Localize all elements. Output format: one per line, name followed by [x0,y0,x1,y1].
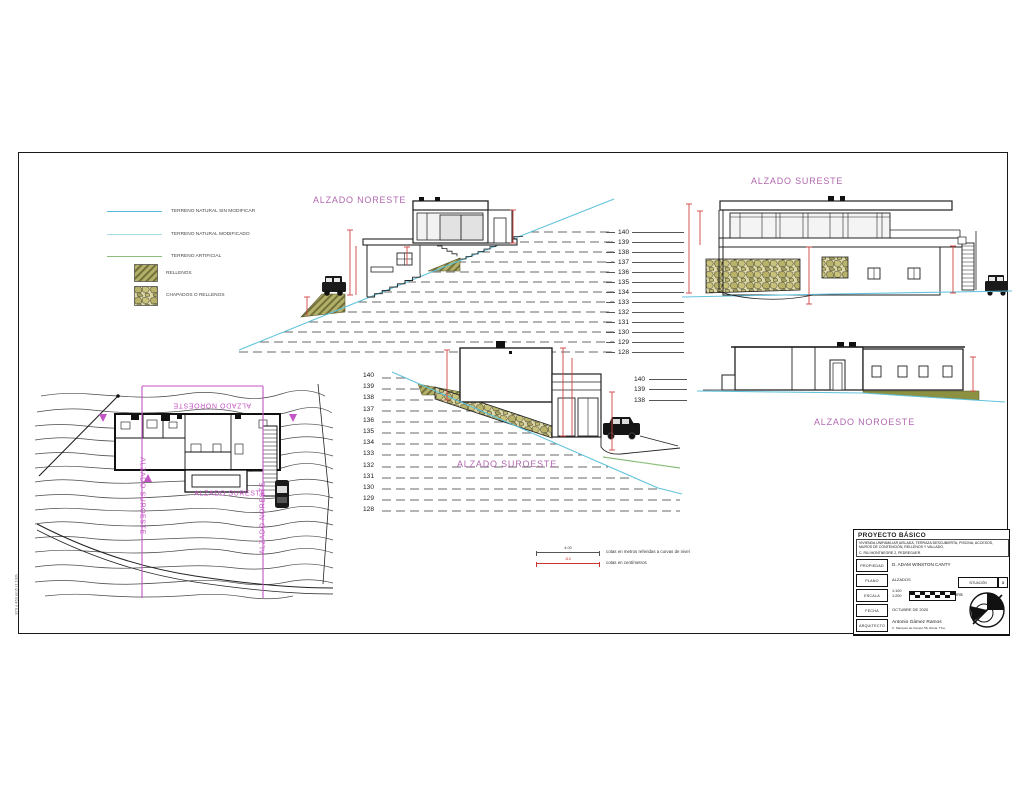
level-value: 131 [606,317,684,327]
dim-legend-cm: 110 cotas en centímetros [536,558,647,567]
project-description: VIVIENDA UNIFAMILIAR AISLADA, TERRAZA DE… [859,541,1006,550]
level-value: 139 [348,383,374,394]
dim-legend-meters-text: cotas en metros referidas a curvas de ni… [606,549,690,554]
drawing-sheet: 870 x 463 pm5 (1:100) TERRENO NATURAL SI… [0,0,1024,785]
alzado-suroeste-drawing [348,338,683,528]
site-label-suroeste: ALZADO SUROESTE [139,457,146,534]
level-value: 129 [348,495,374,506]
situacion-letter: a [998,577,1008,588]
level-value: 138 [348,394,374,405]
car-icon [322,276,346,296]
project-description-box: VIVIENDA UNIFAMILIAR AISLADA, TERRAZA DE… [856,539,1009,557]
title-block: PROYECTO BÁSICO VIVIENDA UNIFAMILIAR AIS… [853,529,1010,636]
levels-column-main: 140139138137136135134133132131130129128 [606,227,684,357]
level-value: 135 [606,277,684,287]
level-value: 139 [606,237,684,247]
stone-swatch-icon [134,286,158,306]
hatch-swatch-icon [134,264,158,282]
dim-legend-meters: 4.00 cotas en metros referidas a curvas … [536,547,690,556]
title-alzado-sureste: ALZADO SURESTE [751,176,843,186]
legend-line-modificado-icon [107,234,162,235]
project-title: PROYECTO BÁSICO [858,532,926,539]
level-value: 136 [606,267,684,277]
level-value: 140 [634,374,687,385]
level-value: 133 [348,450,374,461]
title-alzado-noreste: ALZADO NORESTE [313,195,406,205]
value-arquitecto: Antonio Gámez Ramos C. Marqués de Campo … [892,620,946,630]
level-value: 132 [348,462,374,473]
label-fecha: FECHA [856,604,888,617]
dim-sample-cm-icon: 110 [536,558,600,567]
title-alzado-noroeste: ALZADO NOROESTE [814,417,915,427]
level-value: 137 [348,406,374,417]
levels-column-noroeste: 140139138 [634,374,687,406]
level-value: 134 [606,287,684,297]
level-value: 137 [606,257,684,267]
frame-size-note: 870 x 463 pm5 (1:100) [14,563,19,627]
value-plano: ALZADOS [892,577,911,582]
car-icon [603,417,640,439]
label-propiedad: PROPIEDAD [856,559,888,572]
levels-column-suroeste: 140139138137136135134133132131130129128 [348,372,374,517]
north-compass-icon [966,590,1008,630]
value-escala: 1:1001:200 [892,589,902,599]
level-value: 128 [606,347,684,357]
level-value: 130 [348,484,374,495]
level-value: 140 [606,227,684,237]
level-value: 129 [606,337,684,347]
site-plan-drawing [35,378,335,613]
project-address: C. RIU MONTNEGRE 2, PEDREGUER. [859,551,1006,555]
label-arquitecto: ARQUITECTO [856,619,888,632]
level-value: 136 [348,417,374,428]
scale-unit: mts [956,592,963,597]
situacion-box: SITUACIÓN [958,577,998,588]
level-value: 135 [348,428,374,439]
value-propiedad: D. ADAM WINSTON CANTY [892,562,951,567]
alzado-sureste-drawing [682,183,1012,328]
legend-label-rellenos: RELLENOS [166,271,192,276]
level-value: 128 [348,506,374,517]
legend-label-artificial: TERRENO ARTIFICIAL [171,254,221,259]
level-value: 138 [634,395,687,406]
level-value: 133 [606,297,684,307]
car-top-icon [275,480,289,508]
level-value: 131 [348,473,374,484]
legend-line-natural-icon [107,211,162,212]
level-value: 130 [606,327,684,337]
level-value: 134 [348,439,374,450]
value-fecha: OCTUBRE DE 2020 [892,607,928,612]
site-label-sureste: ALZADO SURESTE [194,491,265,498]
legend-label-chapados: CHAPADOS O RELLENOS [166,293,225,299]
level-value: 139 [634,385,687,396]
site-label-noroeste: ALZADO NOROESTE [173,402,251,409]
level-value: 132 [606,307,684,317]
dim-sample-meters-icon: 4.00 [536,547,600,556]
dim-legend-cm-text: cotas en centímetros [606,560,647,565]
scale-bar [909,591,956,601]
legend-line-artificial-icon [107,256,162,257]
level-value: 138 [606,247,684,257]
arquitecto-detail: C. Marqués de Campo 58, Dénia. Tfno. [892,626,946,630]
label-plano: PLANO [856,574,888,587]
title-alzado-suroeste: ALZADO SUROESTE [457,459,557,469]
level-value: 140 [348,372,374,383]
label-escala: ESCALA [856,589,888,602]
car-icon [985,275,1008,296]
